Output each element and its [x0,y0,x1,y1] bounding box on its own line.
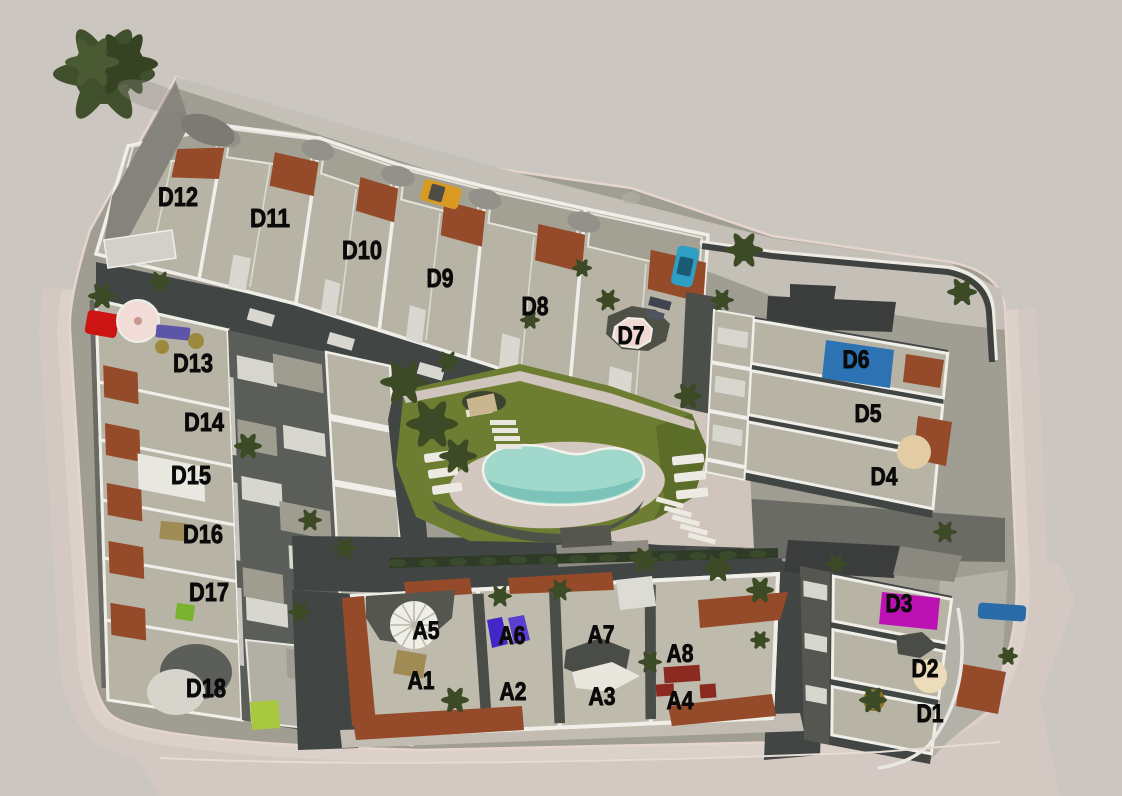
svg-text:D4: D4 [871,463,898,491]
svg-text:D18: D18 [186,673,226,703]
svg-text:A8: A8 [667,640,694,668]
svg-text:A6: A6 [499,622,526,650]
svg-text:D10: D10 [342,235,382,265]
svg-text:D15: D15 [171,460,211,490]
svg-text:D1: D1 [917,700,944,728]
svg-text:D7: D7 [618,322,645,350]
svg-text:D5: D5 [855,400,882,428]
svg-text:D11: D11 [250,203,290,233]
svg-text:D3: D3 [886,590,913,618]
svg-text:D14: D14 [184,407,224,437]
svg-text:D2: D2 [912,655,939,683]
svg-text:D13: D13 [173,348,213,378]
svg-text:D17: D17 [189,577,229,607]
svg-text:A5: A5 [413,617,440,645]
svg-text:A1: A1 [408,667,435,695]
svg-text:D6: D6 [843,346,870,374]
svg-text:D12: D12 [158,182,198,212]
svg-text:A2: A2 [500,678,527,706]
svg-text:A4: A4 [667,687,694,715]
svg-text:A3: A3 [589,683,616,711]
svg-text:D9: D9 [427,263,454,293]
svg-text:A7: A7 [588,621,615,649]
svg-text:D8: D8 [522,291,549,321]
svg-text:D16: D16 [183,519,223,549]
